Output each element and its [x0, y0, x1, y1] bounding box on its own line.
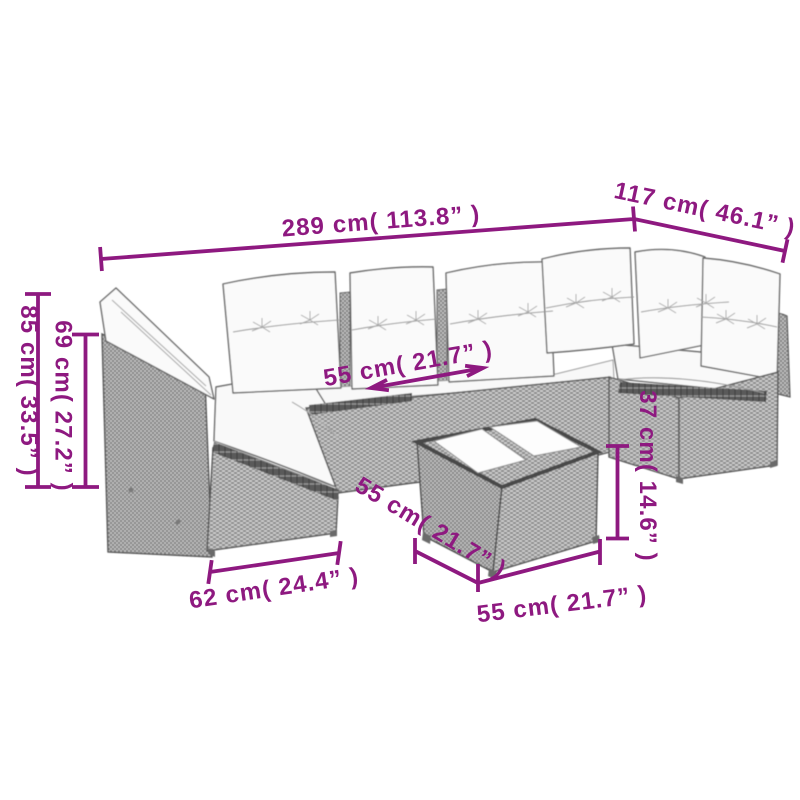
- svg-text:37 cm( 14.6” ): 37 cm( 14.6” ): [634, 390, 661, 561]
- svg-text:69 cm( 27.2” ): 69 cm( 27.2” ): [50, 320, 77, 491]
- svg-text:85 cm( 33.5” ): 85 cm( 33.5” ): [15, 305, 42, 476]
